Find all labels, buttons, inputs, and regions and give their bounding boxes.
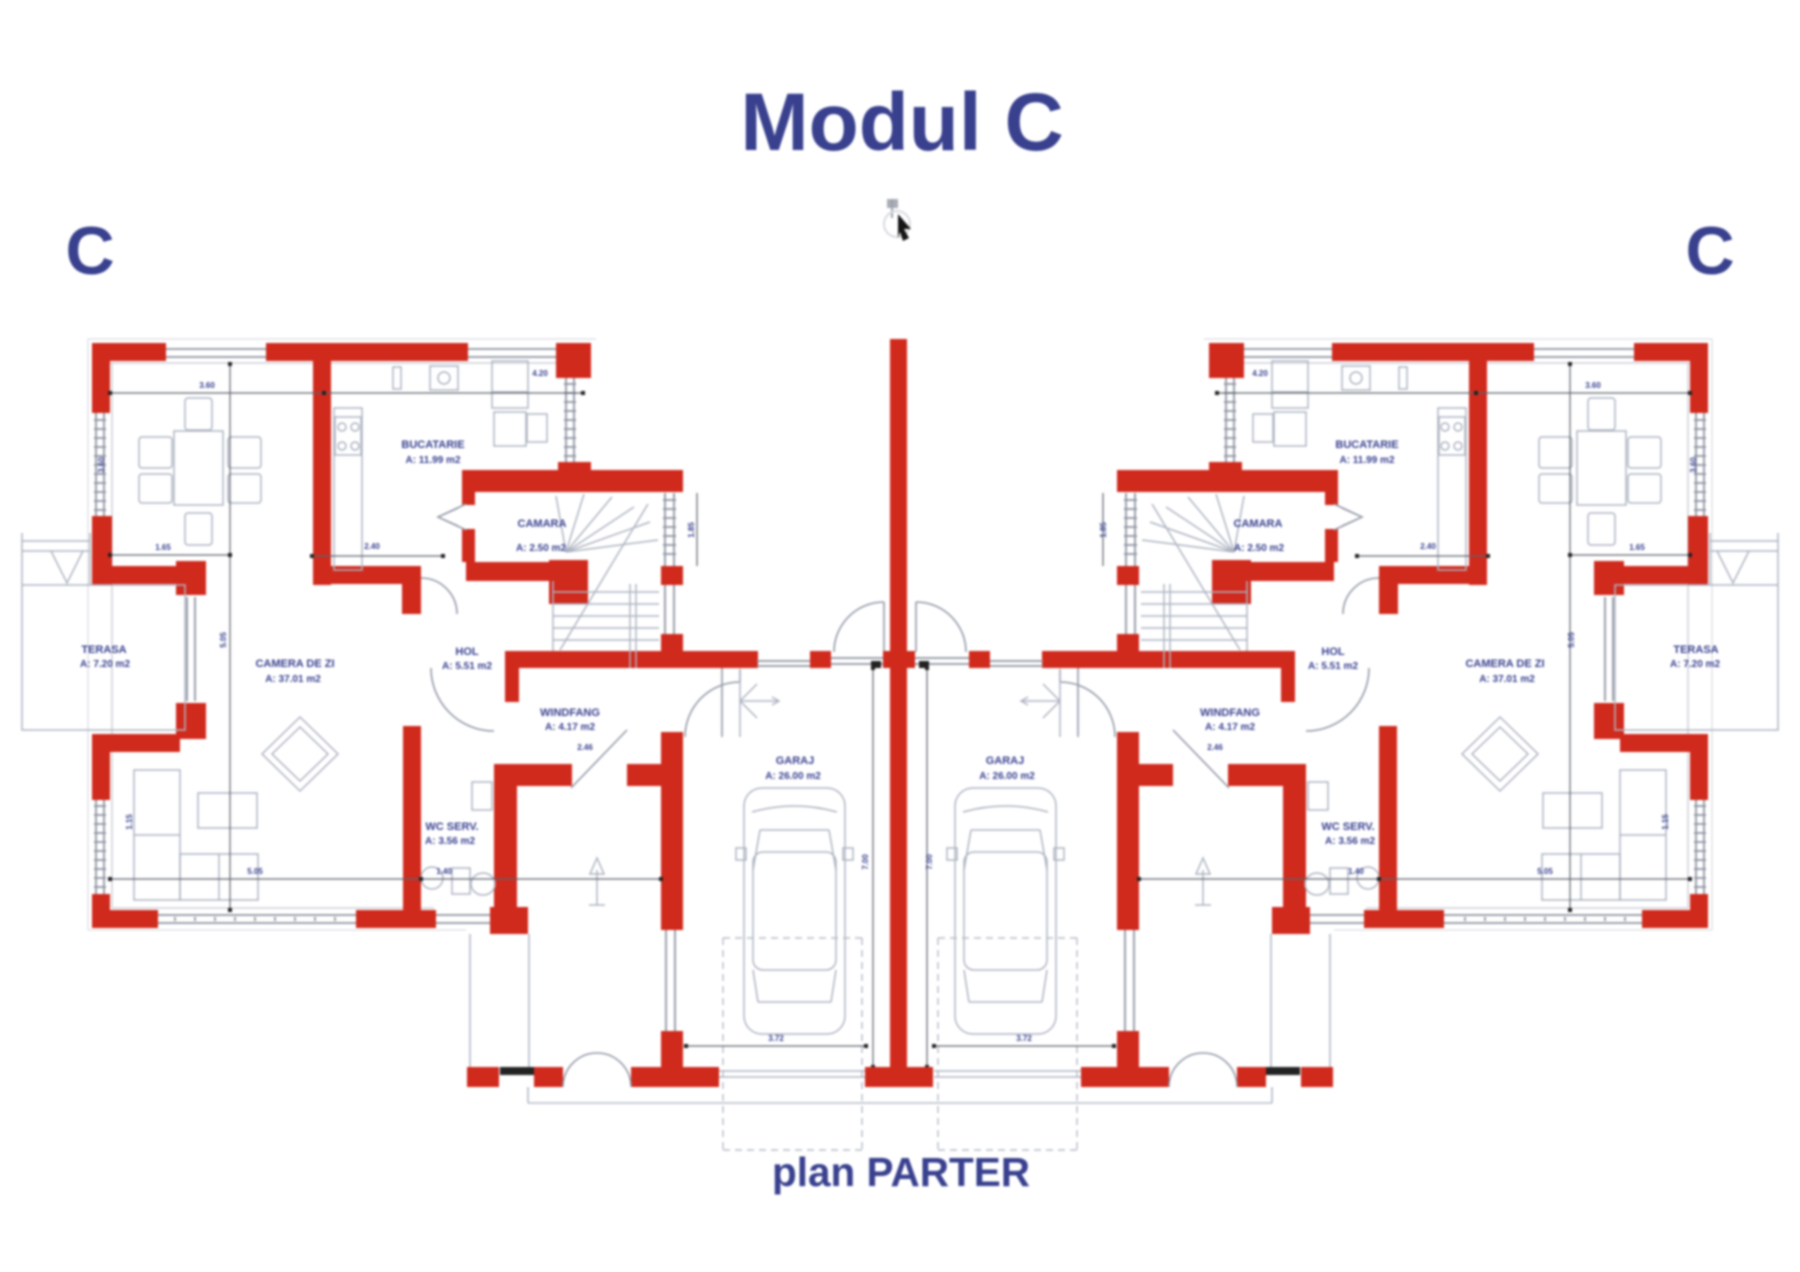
svg-text:A: 2.50 m2: A: 2.50 m2	[1234, 543, 1284, 554]
svg-text:1.65: 1.65	[1629, 543, 1645, 552]
svg-text:A: 4.17 m2: A: 4.17 m2	[545, 722, 595, 733]
svg-text:A: 3.56 m2: A: 3.56 m2	[425, 836, 475, 847]
svg-text:7.00: 7.00	[925, 854, 934, 870]
svg-text:2.46: 2.46	[577, 743, 593, 752]
svg-text:A: 7.20 m2: A: 7.20 m2	[1670, 659, 1720, 670]
svg-text:A: 5.51 m2: A: 5.51 m2	[1308, 661, 1358, 672]
svg-text:1.15: 1.15	[125, 814, 134, 830]
svg-text:WINDFANG: WINDFANG	[1200, 707, 1260, 719]
svg-text:2.40: 2.40	[364, 542, 380, 551]
svg-text:BUCATARIE: BUCATARIE	[1335, 439, 1398, 451]
svg-text:CAMARA: CAMARA	[1234, 518, 1283, 530]
svg-text:7.00: 7.00	[861, 854, 870, 870]
svg-text:4.20: 4.20	[1252, 369, 1268, 378]
svg-text:A: 2.50 m2: A: 2.50 m2	[516, 543, 566, 554]
svg-text:A: 11.99 m2: A: 11.99 m2	[1339, 455, 1394, 466]
svg-text:C: C	[65, 213, 114, 289]
svg-text:A: 11.99 m2: A: 11.99 m2	[405, 455, 460, 466]
svg-text:HOL: HOL	[1321, 646, 1345, 658]
svg-text:5.05: 5.05	[247, 867, 263, 876]
svg-text:2.40: 2.40	[1420, 542, 1436, 551]
svg-text:3.72: 3.72	[768, 1034, 784, 1043]
svg-text:1.40: 1.40	[436, 867, 452, 876]
svg-text:3.72: 3.72	[1016, 1034, 1032, 1043]
svg-text:A: 3.56 m2: A: 3.56 m2	[1325, 836, 1375, 847]
svg-text:BUCATARIE: BUCATARIE	[401, 439, 464, 451]
svg-text:4.20: 4.20	[532, 369, 548, 378]
svg-text:GARAJ: GARAJ	[776, 755, 815, 767]
svg-text:C: C	[1685, 213, 1734, 289]
svg-text:TERASA: TERASA	[1673, 644, 1718, 656]
svg-text:A: 5.51 m2: A: 5.51 m2	[442, 661, 492, 672]
svg-text:WC SERV.: WC SERV.	[1321, 821, 1374, 833]
svg-text:plan PARTER: plan PARTER	[772, 1149, 1030, 1195]
svg-text:3.60: 3.60	[199, 381, 215, 390]
svg-text:A: 7.20 m2: A: 7.20 m2	[80, 659, 130, 670]
svg-text:3.60: 3.60	[97, 457, 106, 473]
svg-text:1.40: 1.40	[1348, 867, 1364, 876]
svg-text:Modul C: Modul C	[740, 77, 1063, 168]
svg-text:2.46: 2.46	[1207, 743, 1223, 752]
svg-text:1.85: 1.85	[687, 522, 696, 538]
svg-text:5.05: 5.05	[219, 632, 228, 648]
svg-text:3.60: 3.60	[1585, 381, 1601, 390]
svg-text:5.05: 5.05	[1537, 867, 1553, 876]
svg-text:CAMERA DE ZI: CAMERA DE ZI	[1465, 658, 1544, 670]
svg-text:A: 37.01 m2: A: 37.01 m2	[265, 674, 321, 685]
svg-text:A: 26.00 m2: A: 26.00 m2	[979, 771, 1035, 782]
svg-text:A: 26.00 m2: A: 26.00 m2	[765, 771, 821, 782]
svg-text:WC SERV.: WC SERV.	[425, 821, 478, 833]
svg-text:1.85: 1.85	[1099, 522, 1108, 538]
svg-text:CAMERA DE ZI: CAMERA DE ZI	[255, 658, 334, 670]
svg-text:HOL: HOL	[455, 646, 479, 658]
svg-text:A: 37.01 m2: A: 37.01 m2	[1479, 674, 1535, 685]
svg-text:CAMARA: CAMARA	[518, 518, 567, 530]
svg-text:WINDFANG: WINDFANG	[540, 707, 600, 719]
svg-text:1.15: 1.15	[1661, 814, 1670, 830]
svg-text:5.05: 5.05	[1567, 632, 1576, 648]
svg-text:3.60: 3.60	[1689, 457, 1698, 473]
svg-text:A: 4.17 m2: A: 4.17 m2	[1205, 722, 1255, 733]
svg-text:TERASA: TERASA	[81, 644, 126, 656]
svg-text:GARAJ: GARAJ	[986, 755, 1025, 767]
svg-text:1.65: 1.65	[155, 543, 171, 552]
